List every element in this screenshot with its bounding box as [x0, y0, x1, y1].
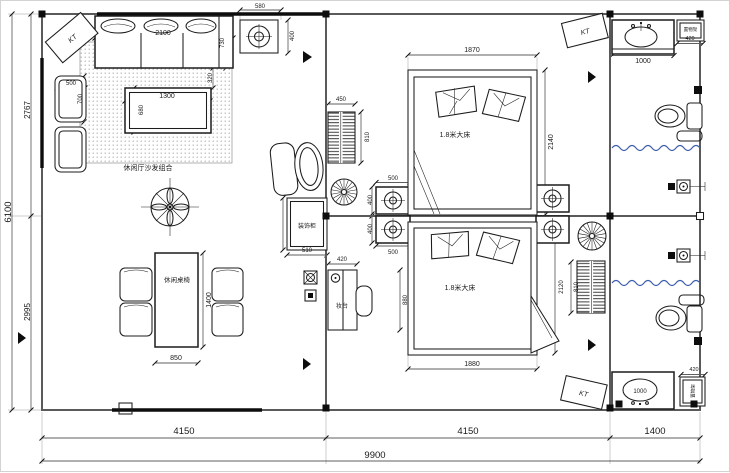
bathroom-1: KT	[561, 13, 705, 193]
dining-set-label: 休闲桌椅	[164, 275, 191, 284]
bed-1	[408, 70, 537, 215]
dim-shelf1-w: 420	[685, 36, 694, 42]
dim-dresser-l: 880	[403, 294, 409, 305]
dim-total-width: 9900	[364, 450, 385, 461]
wall-speaker-icon	[240, 20, 278, 53]
dim-sofa-w: 2100	[155, 30, 171, 37]
fan-icon-2	[578, 222, 606, 250]
dim-table-w: 1300	[159, 93, 175, 100]
dim-table-d: 680	[139, 104, 145, 115]
dim-radiator1-h: 810	[365, 131, 371, 142]
dim-bed1-w: 1870	[464, 47, 480, 54]
dim-dresser-w: 420	[337, 257, 348, 263]
dim-ac-w-bottom: 500	[388, 250, 399, 256]
bed2-label: 1.8米大床	[445, 283, 476, 292]
dresser-stool	[356, 286, 372, 316]
dim-bay1: 4150	[173, 426, 194, 437]
arrow-marker-icon	[303, 358, 311, 370]
floor-plan-drawing: KT	[0, 0, 730, 473]
dim-left-top: 2767	[23, 101, 32, 119]
dining-table	[155, 253, 198, 347]
toilet-2	[656, 295, 704, 332]
dim-armchair-d: 700	[78, 93, 84, 104]
arrow-marker-icon	[303, 51, 312, 63]
sofa-group-label: 休闲厅沙发组合	[124, 163, 173, 172]
living-room: KT	[45, 12, 278, 347]
dim-speaker-d: 400	[290, 30, 296, 41]
bedroom-1	[408, 70, 537, 215]
dim-left-bottom: 2995	[23, 303, 32, 321]
radiator-2	[577, 261, 605, 313]
toilet-mat	[677, 131, 702, 141]
ceiling-fan-icon	[141, 178, 199, 236]
dim-vanity1-w: 1000	[635, 58, 651, 65]
dim-dining-w: 850	[170, 355, 182, 362]
dim-bay3: 1400	[644, 426, 665, 437]
dim-bay2: 4150	[457, 426, 478, 437]
dining-set	[120, 253, 243, 347]
cabinet-label: 装饰柜	[298, 222, 316, 230]
bed1-label: 1.8米大床	[440, 130, 471, 139]
floor-plan-sheet: KT	[0, 0, 730, 473]
dim-cabinet-w: 510	[302, 248, 313, 254]
shower-curtain-2	[612, 281, 700, 286]
bed-2	[408, 222, 559, 355]
dim-speaker-w: 580	[255, 4, 266, 10]
dim-radiator2-h: 810	[574, 281, 580, 292]
outlet-icon-2	[694, 337, 702, 345]
dim-vanity2-basin: 1000	[633, 389, 647, 395]
dim-ac-d-bottom: 400	[368, 223, 374, 234]
dim-armchair-w: 500	[66, 81, 77, 87]
dresser-label: 妆台	[336, 302, 348, 310]
dresser	[328, 270, 372, 330]
arrow-marker-icon	[588, 339, 596, 351]
shower-curtain-1	[612, 146, 700, 151]
vanity-sink-1	[612, 20, 674, 54]
kt-unit-3: KT	[561, 376, 608, 410]
dim-ac-d-top: 400	[368, 194, 374, 205]
dim-sofa-d: 730	[220, 37, 226, 48]
arrow-marker-icon	[18, 332, 26, 344]
dim-bed2-l: 2120	[559, 280, 565, 294]
ac-unit-left-bottom	[376, 216, 410, 243]
kt-unit-2: KT	[561, 13, 608, 47]
lounge-chair	[269, 139, 325, 196]
dim-ac-w-top: 500	[388, 176, 399, 182]
shelf2-label: 置物架	[690, 384, 697, 398]
dim-dining-l: 1400	[206, 292, 213, 308]
shelf1-label: 置物架	[684, 26, 698, 33]
ac-unit-left-top	[376, 187, 410, 214]
dim-shelf2-w: 420	[689, 367, 698, 373]
switch-symbols	[304, 271, 317, 301]
dim-bed2-w: 1880	[464, 361, 480, 368]
fan-icon-1	[331, 179, 357, 205]
dim-radiator1-w: 450	[336, 97, 347, 103]
outlet-icon-1	[694, 86, 702, 94]
toilet-1	[655, 103, 702, 141]
radiator-1	[328, 112, 355, 163]
dim-sofa-arm: 320	[208, 72, 214, 83]
dim-bed1-l: 2140	[548, 134, 555, 150]
hallway	[269, 112, 372, 330]
arrow-marker-icon	[588, 71, 596, 83]
dim-total-height: 6100	[3, 201, 14, 222]
ac-unit-right-top	[536, 185, 569, 212]
sofa	[95, 16, 233, 68]
ac-unit-right-bottom	[536, 216, 569, 243]
